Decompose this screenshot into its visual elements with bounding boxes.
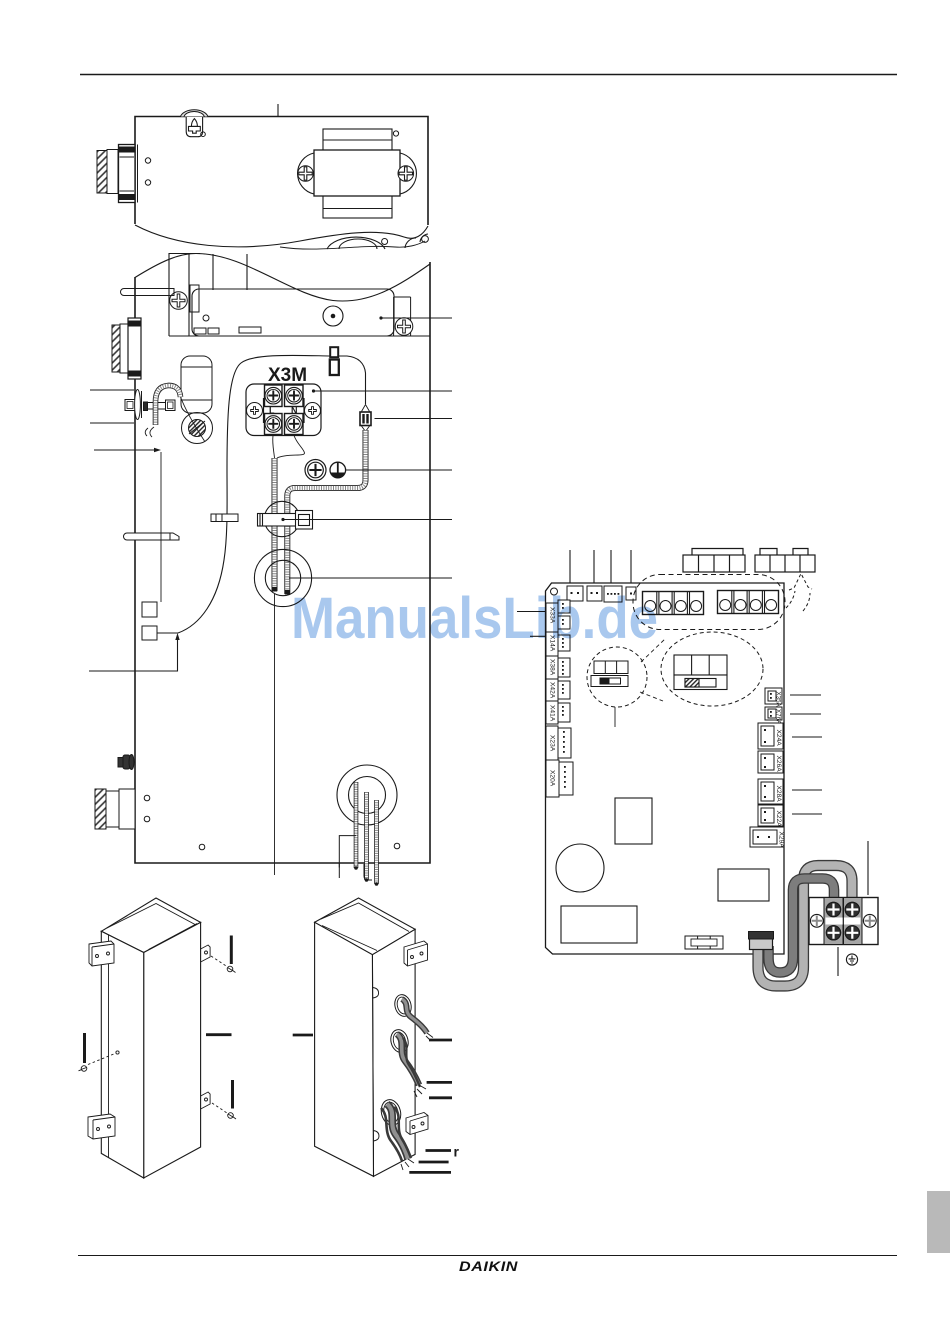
svg-text:X38A: X38A xyxy=(549,659,556,676)
svg-text:r: r xyxy=(454,1144,460,1160)
svg-text:X20A: X20A xyxy=(549,770,556,787)
svg-text:X28A: X28A xyxy=(775,786,782,803)
svg-text:DAIKIN: DAIKIN xyxy=(459,1259,518,1274)
svg-text:X23A: X23A xyxy=(549,735,556,752)
svg-text:L: L xyxy=(269,406,275,416)
svg-text:X42A: X42A xyxy=(549,682,556,699)
svg-text:X22A: X22A xyxy=(775,811,782,828)
svg-text:X35A: X35A xyxy=(775,692,782,708)
svg-text:X24A: X24A xyxy=(775,730,782,747)
svg-text:X26A: X26A xyxy=(775,756,782,773)
svg-text:ManualsLib.de: ManualsLib.de xyxy=(291,586,658,651)
svg-text:N: N xyxy=(291,406,298,416)
svg-text:X3M: X3M xyxy=(268,365,307,386)
svg-text:X41A: X41A xyxy=(549,705,556,722)
svg-text:X29A: X29A xyxy=(778,832,785,849)
